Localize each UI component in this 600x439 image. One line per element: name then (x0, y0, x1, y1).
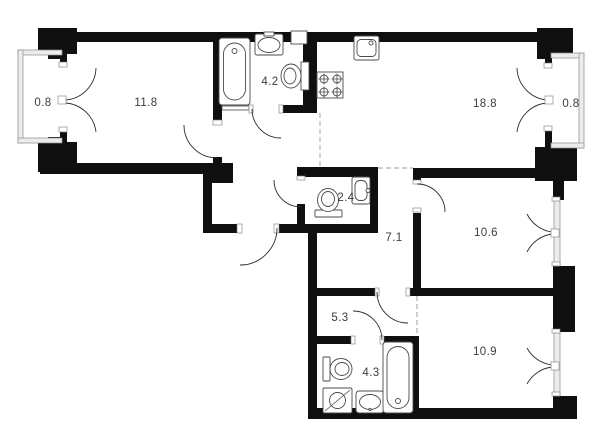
washing-machine-icon (323, 388, 352, 413)
stove-icon (317, 72, 343, 98)
bathtub-icon (219, 38, 250, 105)
door-arc-balcony-right-top (517, 68, 547, 100)
toilet-icon (281, 62, 309, 90)
wall-entry-south-right (277, 224, 378, 233)
balcony-left-glazing-top (18, 50, 62, 55)
wash-basin-icon (356, 391, 384, 413)
wash-basin-icon (352, 177, 370, 204)
balcony-left-glazing-side (18, 50, 23, 143)
door-arc-bathroom-top (252, 109, 281, 138)
balcony-left-glazing-bottom (18, 138, 62, 143)
toilet-icon (323, 357, 352, 381)
label-bathroom-top: 4.2 (261, 76, 278, 88)
label-bathroom-bottom: 4.3 (362, 367, 379, 379)
wall-bath2-north-left (308, 336, 353, 344)
window-sash-bedroom-right-bottom (527, 234, 552, 252)
wall-hall-bedroom (413, 213, 421, 296)
window-stub-top-right (553, 147, 564, 200)
window-sash-bedroom-bottom-top (527, 348, 552, 365)
kitchen-sink-icon (354, 36, 379, 60)
balcony-right-glazing-bottom (551, 143, 584, 148)
wall-bath-thin (222, 106, 249, 110)
door-arc-living-room (184, 125, 217, 158)
door-arc-bathroom-bottom (353, 311, 382, 340)
label-living-room: 11.8 (134, 97, 157, 109)
floor-plan: 0.8 11.8 4.2 18.8 0.8 2.4 7.1 10.6 5.3 4… (0, 0, 600, 439)
pier-bottom-right (553, 396, 577, 419)
window-sash-bedroom-right-top (527, 214, 552, 232)
door-arc-corridor (377, 292, 408, 323)
door-arc-balcony-left-bottom (65, 103, 96, 132)
balcony-right-glazing-side (579, 53, 584, 148)
wash-basin-icon (255, 32, 283, 55)
wall-kitchen-south (413, 168, 537, 178)
door-arc-balcony-right-bottom (517, 103, 547, 132)
label-hallway: 7.1 (385, 232, 402, 244)
wall-wc-north (297, 167, 378, 177)
label-balcony-right: 0.8 (562, 98, 579, 110)
wall-bedrooms-divider (408, 288, 557, 296)
wall-entry-south-left (203, 224, 240, 233)
label-wc: 2.4 (337, 192, 354, 204)
door-arc-wc (274, 180, 301, 207)
door-arc-entrance (240, 228, 277, 265)
label-corridor: 5.3 (331, 312, 348, 324)
door-arc-balcony-left-top (65, 68, 96, 100)
label-kitchen-living: 18.8 (473, 98, 497, 110)
bathtub-icon (383, 342, 413, 413)
wall-hall-south (308, 288, 377, 296)
pier-mid-right (553, 266, 575, 332)
window-sash-bedroom-bottom-bottom (527, 367, 552, 384)
wall-wc-east (370, 167, 378, 232)
label-balcony-left: 0.8 (34, 97, 51, 109)
pier-top-right (537, 28, 573, 54)
wall-wing-west (308, 224, 317, 414)
label-bedroom-bottom: 10.9 (473, 346, 497, 358)
label-bedroom-right: 10.6 (474, 227, 498, 239)
vent-shaft-icon (291, 31, 307, 44)
